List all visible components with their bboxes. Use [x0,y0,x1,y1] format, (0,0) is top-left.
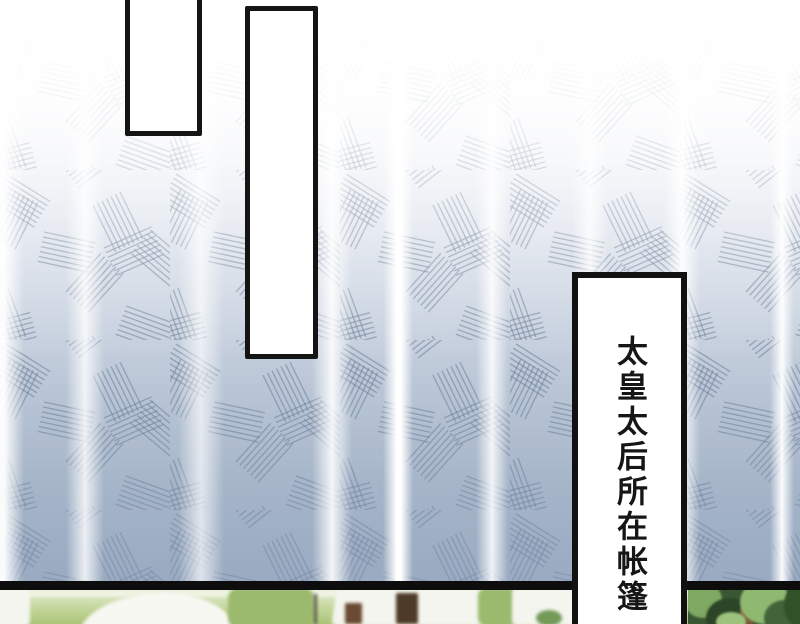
caption-box: 太皇太后所在帐篷 [572,272,687,624]
foliage-scene [688,590,800,624]
tent-shape [0,590,30,624]
curtain-fold-highlight [383,0,413,581]
caption-text: 太皇太后所在帐篷 [614,278,645,624]
curtain-fold-highlight [66,0,104,581]
speech-bubble-1 [125,0,202,136]
curtain-fold-highlight [0,0,24,581]
tent-door [396,593,418,624]
speech-bubble-text [130,0,197,131]
tent-pole [314,594,317,624]
curtain-fold-highlight [476,0,508,581]
grass-patch [478,590,516,624]
tent-door [345,603,362,624]
speech-bubble-text [250,11,313,354]
bush [536,610,562,624]
curtain-fold-highlight [770,0,794,581]
curtain-fold-highlight [312,0,352,581]
speech-bubble-2 [245,6,318,359]
comic-page: 太皇太后所在帐篷 [0,0,800,624]
grass-patch [228,590,314,624]
tent-shape [78,593,236,624]
